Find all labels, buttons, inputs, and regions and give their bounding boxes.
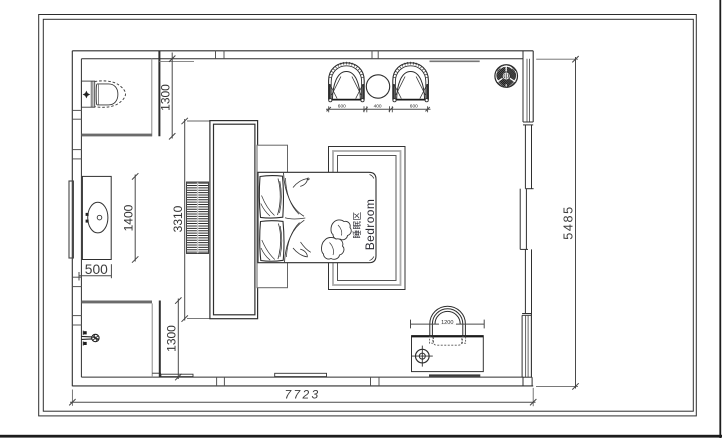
svg-text:睡眠区: 睡眠区: [352, 212, 362, 239]
svg-text:7723: 7723: [285, 387, 321, 401]
svg-text:Bedroom: Bedroom: [363, 199, 377, 251]
svg-text:600: 600: [338, 103, 346, 109]
svg-text:1300: 1300: [158, 84, 172, 111]
svg-text:5485: 5485: [562, 205, 576, 239]
svg-text:1400: 1400: [121, 204, 135, 231]
svg-text:400: 400: [374, 103, 382, 109]
svg-text:600: 600: [410, 103, 418, 109]
svg-text:1200: 1200: [441, 320, 453, 326]
svg-text:3310: 3310: [171, 205, 185, 232]
svg-text:1300: 1300: [165, 325, 179, 352]
svg-text:500: 500: [85, 262, 108, 277]
